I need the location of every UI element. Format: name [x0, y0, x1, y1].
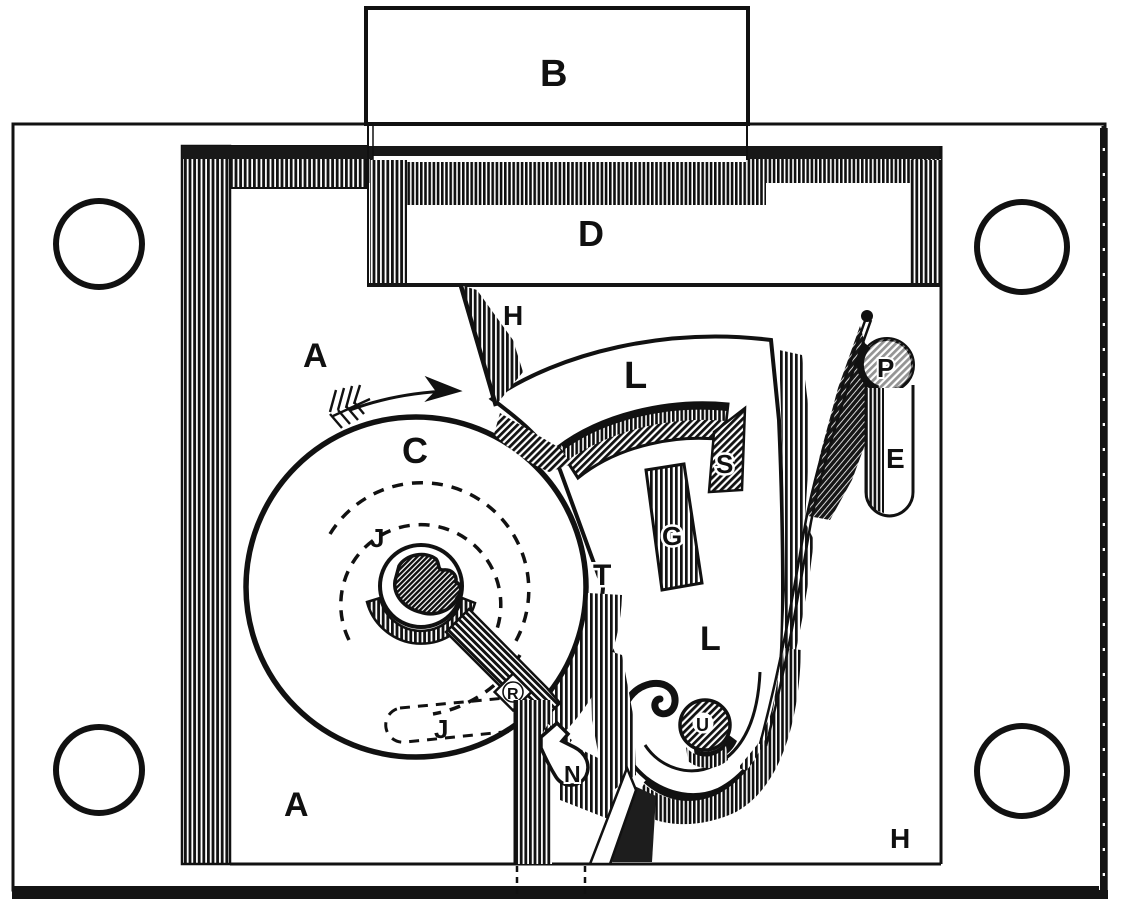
svg-text:P: P — [877, 353, 894, 383]
svg-text:J: J — [434, 714, 448, 744]
svg-text:G: G — [662, 521, 682, 551]
svg-text:U: U — [696, 715, 709, 735]
svg-text:D: D — [578, 213, 604, 254]
svg-text:N: N — [564, 761, 581, 787]
svg-text:L: L — [624, 355, 647, 397]
svg-text:T: T — [593, 559, 611, 592]
svg-text:A: A — [303, 337, 328, 375]
svg-text:J: J — [370, 523, 384, 553]
svg-text:B: B — [540, 53, 567, 95]
svg-text:A: A — [284, 786, 309, 824]
svg-text:C: C — [402, 430, 428, 471]
svg-text:L: L — [700, 620, 721, 658]
svg-text:S: S — [716, 449, 733, 479]
svg-text:H: H — [890, 823, 910, 854]
svg-text:E: E — [886, 443, 905, 474]
svg-text:H: H — [503, 300, 523, 331]
